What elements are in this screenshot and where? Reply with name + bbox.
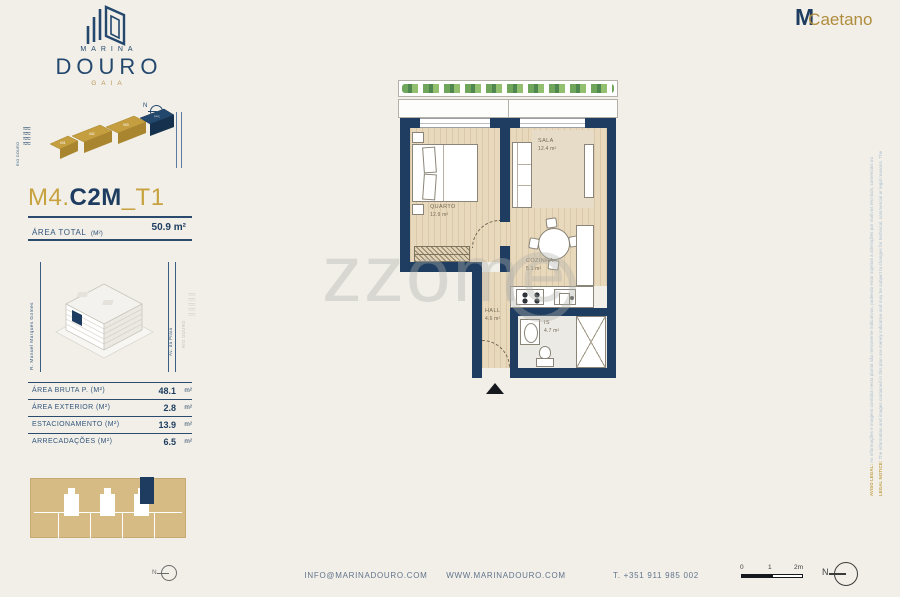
key-compass-n: N bbox=[152, 569, 157, 576]
chair bbox=[545, 217, 557, 228]
dining-table bbox=[538, 228, 570, 260]
street-right-label: Av. da Praia bbox=[168, 280, 173, 356]
footer-email: INFO@MARINADOURO.COM bbox=[300, 571, 432, 580]
room-area: 12.4 m² bbox=[538, 146, 556, 153]
sink-basin bbox=[559, 293, 570, 305]
scale-0: 0 bbox=[740, 564, 744, 571]
title-divider-top bbox=[28, 216, 192, 218]
wall bbox=[472, 272, 482, 378]
wall bbox=[512, 368, 616, 378]
row-unit: m² bbox=[184, 421, 192, 428]
floor-plate-diagram bbox=[28, 472, 188, 548]
room-name: IS bbox=[544, 320, 559, 328]
row-unit: m² bbox=[184, 438, 192, 445]
washbasin bbox=[524, 323, 538, 343]
building-isometric bbox=[52, 256, 157, 374]
legal-text-en: LEGAL NOTICE: The information and images… bbox=[878, 150, 885, 496]
block-m3-label: M3 bbox=[123, 122, 129, 127]
floorplan-brochure-page: MARINA DOURO GAIA RIO DOURO ≈≈≈≈≈≈≈≈ M1 … bbox=[0, 0, 900, 597]
row-value: 48.1 bbox=[158, 386, 176, 396]
agency-logo: MCaetano bbox=[795, 4, 872, 31]
row-value: 13.9 bbox=[158, 420, 176, 430]
brand-marina-text: MARINA bbox=[60, 46, 158, 53]
river-right-label: RIO DOURO bbox=[181, 288, 186, 348]
legal-text-pt: AVISO LEGAL: As informações e imagens co… bbox=[869, 150, 876, 496]
room-area: 12.9 m² bbox=[430, 212, 456, 219]
scale-2m: 2m bbox=[794, 564, 803, 571]
plan-compass-n: N bbox=[822, 567, 829, 577]
is-label: IS 4.7 m² bbox=[544, 320, 559, 335]
balcony-divider bbox=[508, 99, 509, 118]
row-unit: m² bbox=[184, 387, 192, 394]
row-label: ESTACIONAMENTO (M²) bbox=[32, 421, 119, 428]
site-compass-needle bbox=[148, 111, 157, 112]
site-compass-n: N bbox=[143, 103, 147, 109]
legal-en-body: The information and images contained in … bbox=[878, 151, 885, 496]
room-area: 4.7 m² bbox=[544, 328, 559, 335]
street-left-line bbox=[40, 262, 41, 372]
nightstand bbox=[412, 132, 424, 143]
toilet-bowl bbox=[539, 346, 551, 359]
plate-line bbox=[154, 512, 155, 538]
scale-1: 1 bbox=[768, 564, 772, 571]
room-area: 5.1 m² bbox=[526, 266, 554, 273]
table-row: ÁREA BRUTA P. (M²) 48.1 m² bbox=[28, 382, 192, 399]
plan-compass-needle bbox=[829, 573, 846, 575]
core-cutout bbox=[100, 494, 115, 516]
wall bbox=[500, 246, 510, 272]
scale-segment-dark bbox=[741, 574, 772, 578]
plate-line bbox=[122, 512, 123, 538]
legal-en-lead: LEGAL NOTICE: bbox=[878, 461, 883, 496]
row-value: 6.5 bbox=[163, 437, 176, 447]
shower bbox=[576, 316, 606, 368]
plants-icon bbox=[402, 84, 614, 93]
area-total-label: ÁREA TOTAL bbox=[32, 228, 86, 237]
cooktop bbox=[516, 289, 544, 305]
area-total-value: 50.9 m² bbox=[152, 222, 186, 233]
title-divider-bottom bbox=[28, 239, 192, 241]
footer-website: WWW.MARINADOURO.COM bbox=[444, 571, 568, 580]
block-m2-label: M2 bbox=[89, 131, 95, 136]
sheet-line bbox=[443, 145, 444, 201]
sofa bbox=[512, 142, 532, 208]
nightstand bbox=[412, 204, 424, 215]
room-name: QUARTO bbox=[430, 204, 456, 212]
wardrobe-divider bbox=[415, 254, 469, 255]
block-m1: M1 bbox=[50, 136, 78, 159]
wall bbox=[607, 118, 616, 378]
site-avenue-line-1 bbox=[176, 112, 177, 168]
entrance-arrow-icon bbox=[486, 383, 504, 394]
legal-pt-lead: AVISO LEGAL: bbox=[869, 464, 874, 496]
wall bbox=[472, 368, 482, 378]
row-value: 2.8 bbox=[163, 403, 176, 413]
plate-line bbox=[58, 512, 59, 538]
floor-plan: QUARTO 12.9 m² SALA 12.4 m² COZINHA 5.1 … bbox=[398, 80, 618, 400]
table-row: ARRECADAÇÕES (M²) 6.5 m² bbox=[28, 433, 192, 450]
scale-segment-light bbox=[772, 574, 803, 578]
door-opening-floor bbox=[500, 222, 510, 246]
pillow bbox=[422, 174, 437, 201]
highlighted-unit-on-plate bbox=[140, 477, 154, 504]
footer-phone: T. +351 911 985 002 bbox=[598, 571, 714, 580]
room-area: 4.6 m² bbox=[485, 316, 500, 323]
planter-strip bbox=[398, 80, 618, 97]
hall-label: HALL 4.6 m² bbox=[485, 308, 500, 323]
brand-douro-text: DOURO bbox=[48, 54, 170, 80]
wall bbox=[500, 118, 510, 222]
river-right-waves-icon: ≈≈≈≈≈≈≈≈≈≈ bbox=[188, 292, 195, 317]
room-name: HALL bbox=[485, 308, 500, 316]
area-total-unit: (M²) bbox=[91, 230, 103, 237]
area-table: ÁREA BRUTA P. (M²) 48.1 m² ÁREA EXTERIOR… bbox=[28, 382, 192, 450]
sala-window bbox=[520, 118, 585, 128]
wall bbox=[400, 118, 410, 272]
plate-line bbox=[90, 512, 91, 538]
room-name: SALA bbox=[538, 138, 556, 146]
cozinha-label: COZINHA 5.1 m² bbox=[526, 258, 554, 273]
pillow bbox=[422, 147, 437, 174]
wall bbox=[510, 308, 616, 316]
row-label: ARRECADAÇÕES (M²) bbox=[32, 438, 112, 445]
wardrobe bbox=[414, 246, 470, 262]
area-total-row: ÁREA TOTAL (M²) 50.9 m² bbox=[32, 222, 190, 236]
quarto-window bbox=[420, 118, 490, 128]
river-waves-icon: ≈≈≈≈≈≈≈≈ bbox=[23, 126, 30, 146]
kitchen-cabinet bbox=[576, 225, 594, 286]
unit-model-code: C2M bbox=[70, 184, 122, 211]
block-m1-label: M1 bbox=[60, 140, 66, 145]
room-name: COZINHA bbox=[526, 258, 554, 266]
row-label: ÁREA BRUTA P. (M²) bbox=[32, 387, 105, 394]
row-unit: m² bbox=[184, 404, 192, 411]
agency-caetano: Caetano bbox=[808, 10, 872, 29]
chair bbox=[528, 237, 540, 250]
legal-pt-body: As informações e imagens contidas nesta … bbox=[869, 157, 876, 496]
unit-title: M4.C2M_T1 bbox=[28, 184, 165, 212]
row-label: ÁREA EXTERIOR (M²) bbox=[32, 404, 110, 411]
table-row: ESTACIONAMENTO (M²) 13.9 m² bbox=[28, 416, 192, 433]
unit-typology-code: _T1 bbox=[122, 184, 165, 211]
core-cutout bbox=[64, 494, 79, 516]
wall bbox=[400, 262, 482, 272]
tv-cabinet bbox=[584, 144, 594, 198]
site-river-label: RIO DOURO bbox=[16, 124, 20, 166]
brand-gaia-text: GAIA bbox=[60, 80, 158, 87]
core-cutout bbox=[68, 488, 75, 496]
street-right-line-2 bbox=[175, 262, 176, 372]
unit-block-code: M4. bbox=[28, 184, 70, 211]
key-compass-needle bbox=[157, 573, 169, 574]
marina-douro-building-icon bbox=[72, 4, 144, 48]
toilet-tank bbox=[536, 358, 554, 367]
table-row: ÁREA EXTERIOR (M²) 2.8 m² bbox=[28, 399, 192, 416]
bed bbox=[412, 144, 478, 202]
faucet bbox=[570, 296, 574, 300]
sala-label: SALA 12.4 m² bbox=[538, 138, 556, 153]
quarto-label: QUARTO 12.9 m² bbox=[430, 204, 456, 219]
site-avenue-line-2 bbox=[181, 112, 182, 168]
street-left-label: R. Manuel Marques Gomes bbox=[30, 264, 35, 370]
core-cutout bbox=[104, 488, 111, 496]
washbasin-counter bbox=[520, 319, 540, 345]
sink bbox=[554, 289, 576, 305]
